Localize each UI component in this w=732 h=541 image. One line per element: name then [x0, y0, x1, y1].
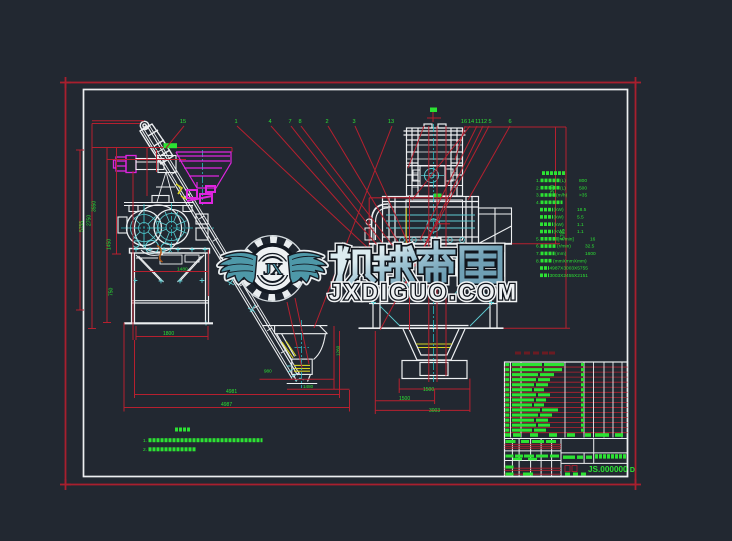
- svg-text:8: 8: [298, 119, 301, 125]
- svg-text:1260: 1260: [336, 345, 341, 356]
- svg-text:(kW): (kW): [554, 215, 565, 221]
- svg-text:3003: 3003: [429, 408, 440, 414]
- svg-text:3.: 3.: [536, 193, 540, 199]
- svg-text:(KW): (KW): [554, 229, 565, 235]
- svg-text:4981: 4981: [226, 389, 237, 395]
- svg-text:1480: 1480: [303, 384, 314, 389]
- svg-text:980: 980: [264, 369, 272, 374]
- svg-text:8.: 8.: [536, 258, 540, 264]
- svg-text:1800: 1800: [163, 331, 174, 337]
- svg-text:5: 5: [488, 119, 491, 125]
- svg-text:18.5: 18.5: [577, 207, 587, 213]
- svg-text:14: 14: [468, 119, 474, 125]
- svg-text:5.: 5.: [536, 236, 540, 242]
- svg-text:1: 1: [234, 119, 237, 125]
- svg-text:>35: >35: [579, 193, 587, 199]
- svg-text:(kW): (kW): [554, 222, 565, 228]
- svg-text:1.: 1.: [143, 438, 147, 444]
- svg-text:1500: 1500: [423, 387, 434, 393]
- svg-text:(L): (L): [560, 185, 566, 191]
- svg-text:(r/min): (r/min): [557, 244, 571, 250]
- svg-text:6.: 6.: [536, 244, 540, 250]
- svg-text:13: 13: [388, 119, 394, 125]
- svg-text:4: 4: [268, 119, 271, 125]
- svg-text:4.: 4.: [536, 200, 540, 206]
- svg-text:32.5: 32.5: [585, 244, 595, 250]
- svg-text:3003X2455X2151: 3003X2455X2151: [550, 273, 589, 279]
- svg-text:2: 2: [325, 119, 328, 125]
- svg-text:5755: 5755: [79, 221, 85, 232]
- svg-text:2750: 2750: [87, 215, 93, 226]
- svg-text:1600: 1600: [585, 251, 596, 257]
- svg-text:750: 750: [109, 287, 115, 296]
- svg-text:(L): (L): [560, 178, 566, 184]
- svg-text:16: 16: [461, 119, 467, 125]
- svg-text:16: 16: [590, 236, 596, 242]
- svg-text:(mmXmmXmm): (mmXmmXmm): [553, 258, 587, 264]
- svg-text:7: 7: [288, 119, 291, 125]
- svg-text:4987X3003X5755: 4987X3003X5755: [550, 266, 589, 272]
- svg-text:15: 15: [180, 119, 186, 125]
- svg-text:800: 800: [579, 178, 587, 184]
- svg-text:7.: 7.: [536, 251, 540, 257]
- svg-text:(kW): (kW): [554, 207, 565, 213]
- svg-text:2.: 2.: [536, 185, 540, 191]
- svg-text:JXDIGUO.COM: JXDIGUO.COM: [329, 280, 519, 305]
- svg-text:2.: 2.: [143, 447, 147, 453]
- svg-text:3550: 3550: [92, 201, 98, 212]
- svg-text:JS.000000 D: JS.000000 D: [588, 465, 635, 474]
- svg-text:3: 3: [352, 119, 355, 125]
- svg-text:5.5: 5.5: [577, 215, 584, 221]
- svg-text:1.1: 1.1: [577, 229, 584, 235]
- svg-text:[m/min]: [m/min]: [558, 236, 574, 242]
- svg-text:6: 6: [508, 119, 511, 125]
- svg-text:(mm): (mm): [555, 251, 567, 257]
- svg-text:1480: 1480: [177, 266, 188, 272]
- svg-text:JX: JX: [263, 260, 284, 279]
- svg-text:12: 12: [481, 119, 487, 125]
- svg-text:1450: 1450: [107, 239, 113, 250]
- svg-text:(m/h): (m/h): [556, 193, 568, 199]
- svg-text:1.1: 1.1: [577, 222, 584, 228]
- svg-text:1.: 1.: [536, 178, 540, 184]
- svg-text:4987: 4987: [221, 402, 232, 408]
- svg-text:1500: 1500: [399, 396, 410, 402]
- svg-text:500: 500: [579, 185, 587, 191]
